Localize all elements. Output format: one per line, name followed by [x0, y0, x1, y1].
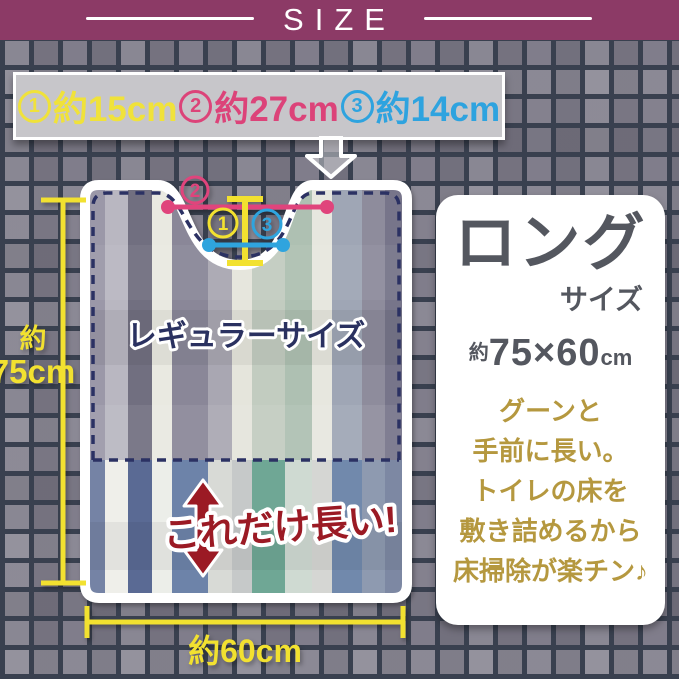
- marker-3: 3: [262, 215, 273, 236]
- circled-number-2: 2: [179, 90, 212, 123]
- panel-subtitle: サイズ: [436, 278, 665, 318]
- height-measure-value: 75cm: [0, 353, 75, 390]
- marker-2: 2: [190, 181, 201, 202]
- dimension-unit: cm: [600, 345, 632, 370]
- size-header-band: SIZE: [0, 0, 679, 40]
- panel-description-line: 敷き詰めるから: [436, 511, 665, 551]
- width-measure-label: 約60cm: [188, 633, 302, 669]
- marker-1: 1: [218, 214, 229, 235]
- panel-description-line: 床掃除が楽チン♪: [436, 551, 665, 591]
- long-size-panel: ロング サイズ 約75×60cm グーンと手前に長い。トイレの床を敷き詰めるから…: [436, 195, 665, 625]
- panel-dimensions: 約75×60cm: [436, 332, 665, 375]
- dimension-value: 75×60: [489, 332, 601, 374]
- circled-number-1: 1: [18, 90, 51, 123]
- legend-label-2: 約27cm: [214, 81, 339, 132]
- circled-number-3: 3: [341, 90, 374, 123]
- legend-item-3: 3 約14cm: [341, 81, 501, 132]
- panel-description-line: グーンと: [436, 391, 665, 431]
- measurement-legend-banner: 1 約15cm 2 約27cm 3 約14cm: [13, 72, 505, 140]
- panel-title: ロング: [436, 211, 665, 276]
- product-size-infographic: SIZE 1 約15cm 2 約27cm 3 約14cm: [0, 0, 679, 679]
- regular-size-label: レギュラーサイズ: [127, 319, 366, 353]
- height-measure-prefix: 約: [20, 323, 47, 354]
- height-measure: [41, 200, 86, 583]
- panel-description: グーンと手前に長い。トイレの床を敷き詰めるから床掃除が楽チン♪: [436, 391, 665, 591]
- dimension-prefix: 約: [469, 342, 489, 364]
- page-title: SIZE: [0, 0, 679, 40]
- legend-item-2: 2 約27cm: [179, 81, 339, 132]
- panel-description-line: トイレの床を: [436, 471, 665, 511]
- header-rule-right: [424, 17, 592, 20]
- legend-label-3: 約14cm: [376, 81, 501, 132]
- legend-label-1: 約15cm: [53, 81, 178, 132]
- panel-description-line: 手前に長い。: [436, 431, 665, 471]
- legend-item-1: 1 約15cm: [18, 81, 178, 132]
